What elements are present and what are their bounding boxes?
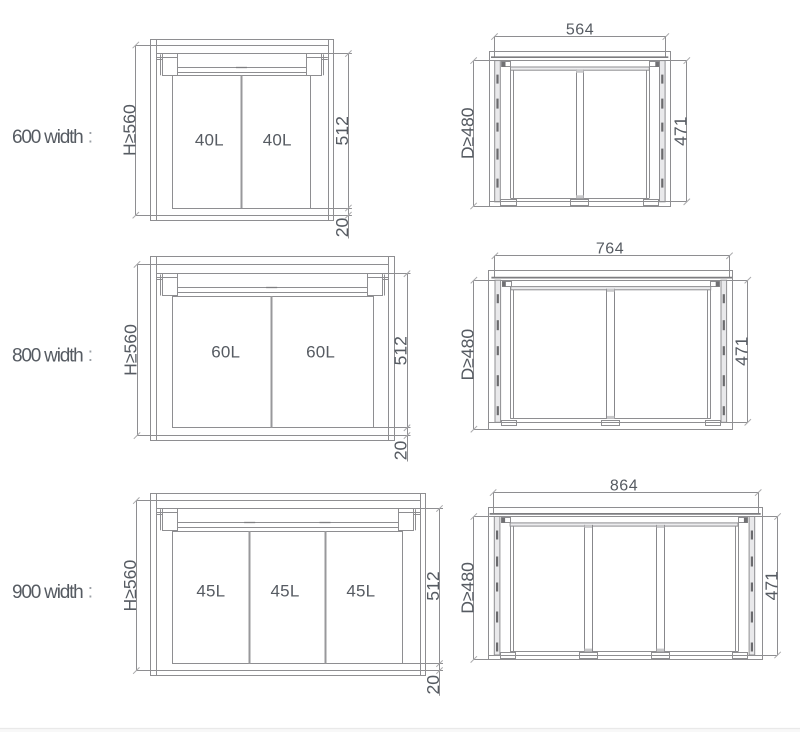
- svg-text:512: 512: [332, 116, 352, 145]
- svg-text:H≥560: H≥560: [120, 560, 140, 612]
- svg-text:45L: 45L: [271, 582, 300, 601]
- svg-text:D≥480: D≥480: [458, 329, 478, 381]
- svg-text:600 width: 600 width: [12, 127, 83, 148]
- svg-text:471: 471: [761, 571, 781, 600]
- svg-text:564: 564: [566, 21, 594, 38]
- svg-text:471: 471: [732, 337, 752, 366]
- svg-text:60L: 60L: [211, 343, 240, 362]
- svg-text:512: 512: [391, 336, 411, 365]
- svg-text:D≥480: D≥480: [458, 562, 478, 614]
- svg-text:20: 20: [391, 441, 411, 461]
- svg-text:D≥480: D≥480: [457, 107, 477, 159]
- svg-text:512: 512: [423, 571, 443, 600]
- svg-text:H≥560: H≥560: [120, 104, 140, 156]
- svg-text:45L: 45L: [346, 582, 375, 601]
- svg-text:471: 471: [671, 117, 691, 146]
- svg-text::: :: [88, 345, 93, 366]
- svg-text:20: 20: [423, 675, 443, 695]
- svg-text:864: 864: [610, 477, 638, 494]
- svg-text::: :: [88, 127, 93, 148]
- svg-text:764: 764: [596, 241, 624, 258]
- svg-text:40L: 40L: [195, 130, 224, 149]
- svg-text::: :: [88, 582, 93, 603]
- svg-text:45L: 45L: [196, 582, 225, 601]
- svg-text:800 width: 800 width: [12, 346, 83, 367]
- svg-text:H≥560: H≥560: [121, 324, 141, 376]
- svg-text:20: 20: [332, 218, 352, 238]
- svg-text:60L: 60L: [306, 343, 335, 362]
- svg-text:40L: 40L: [263, 130, 292, 149]
- svg-text:900 width: 900 width: [12, 582, 83, 603]
